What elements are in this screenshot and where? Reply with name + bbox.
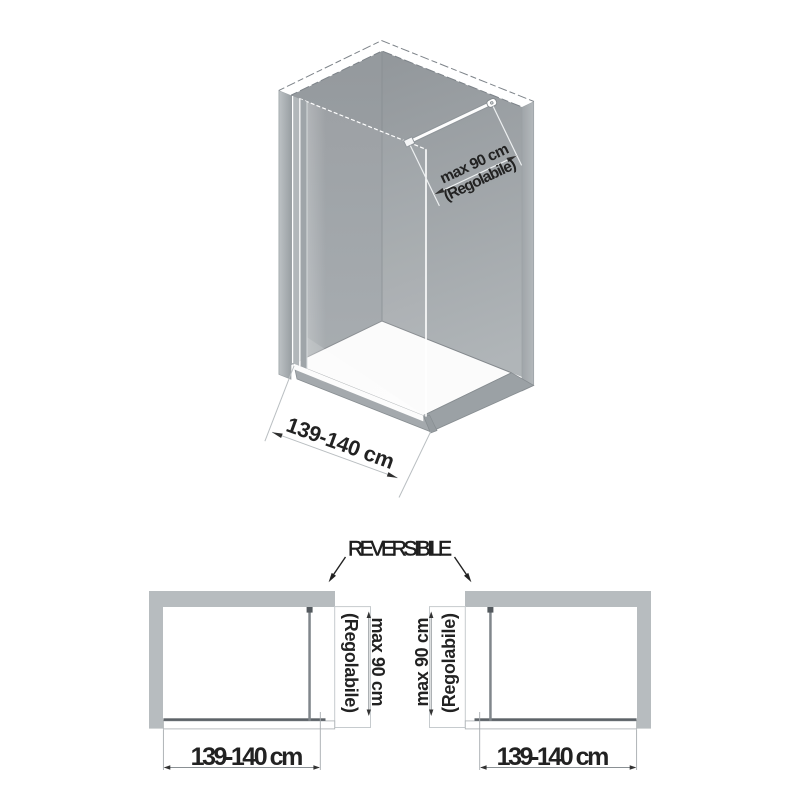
- svg-text:139-140 cm: 139-140 cm: [283, 413, 397, 474]
- svg-text:max 90 cm: max 90 cm: [368, 618, 388, 707]
- svg-text:max 90 cm: max 90 cm: [412, 618, 432, 707]
- svg-text:139-140 cm: 139-140 cm: [191, 743, 304, 771]
- svg-text:139-140 cm: 139-140 cm: [497, 743, 610, 771]
- svg-text:REVERSIBILE: REVERSIBILE: [348, 538, 452, 561]
- svg-text:(Regolabile): (Regolabile): [341, 613, 361, 713]
- svg-text:(Regolabile): (Regolabile): [439, 613, 459, 713]
